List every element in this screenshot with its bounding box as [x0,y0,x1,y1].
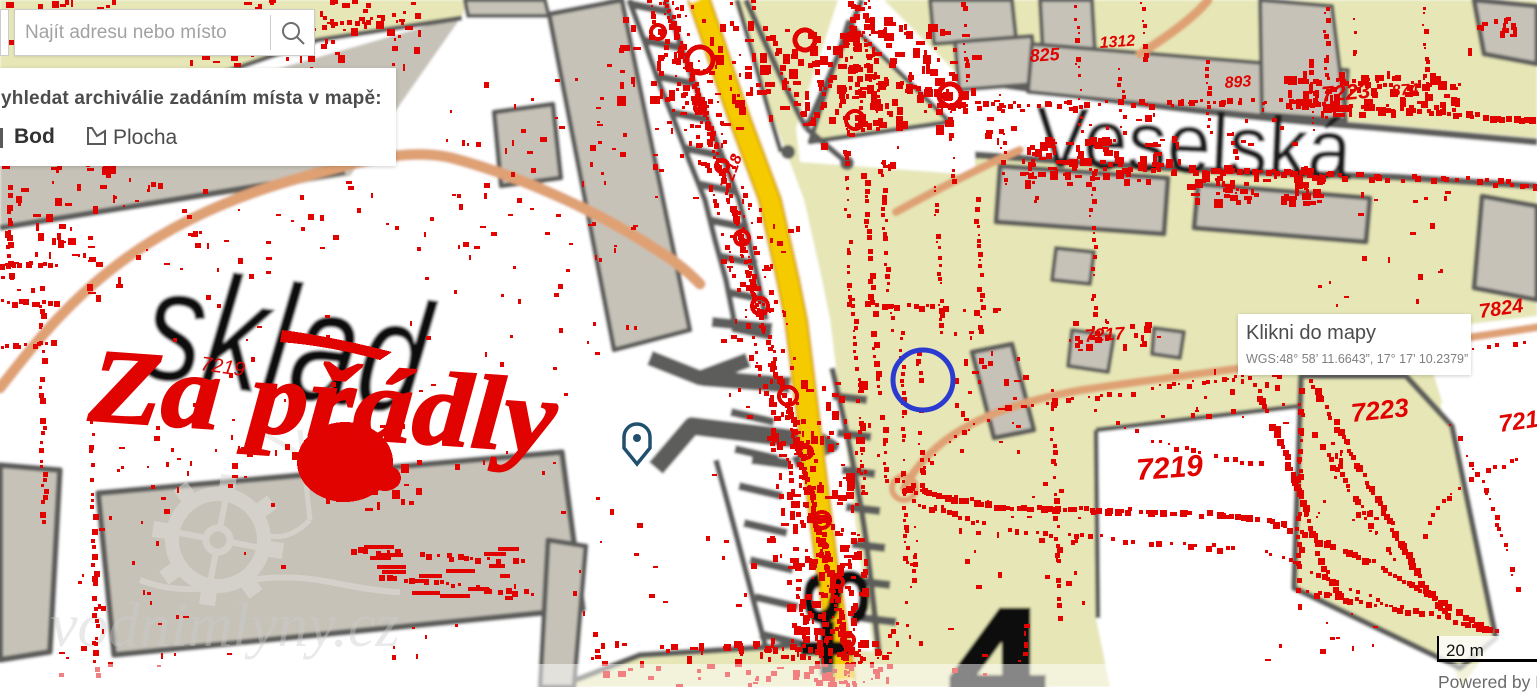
svg-text:893: 893 [1224,73,1252,92]
svg-text:825: 825 [1029,44,1061,66]
svg-text:1312: 1312 [1099,33,1136,52]
svg-text:7219: 7219 [1135,449,1204,487]
svg-text:vodnimlyny.cz: vodnimlyny.cz [50,592,400,660]
svg-text:874: 874 [1391,81,1419,100]
svg-text:7223: 7223 [1320,78,1371,107]
svg-text:7217: 7217 [1084,323,1126,346]
svg-text:7223: 7223 [1349,392,1410,428]
